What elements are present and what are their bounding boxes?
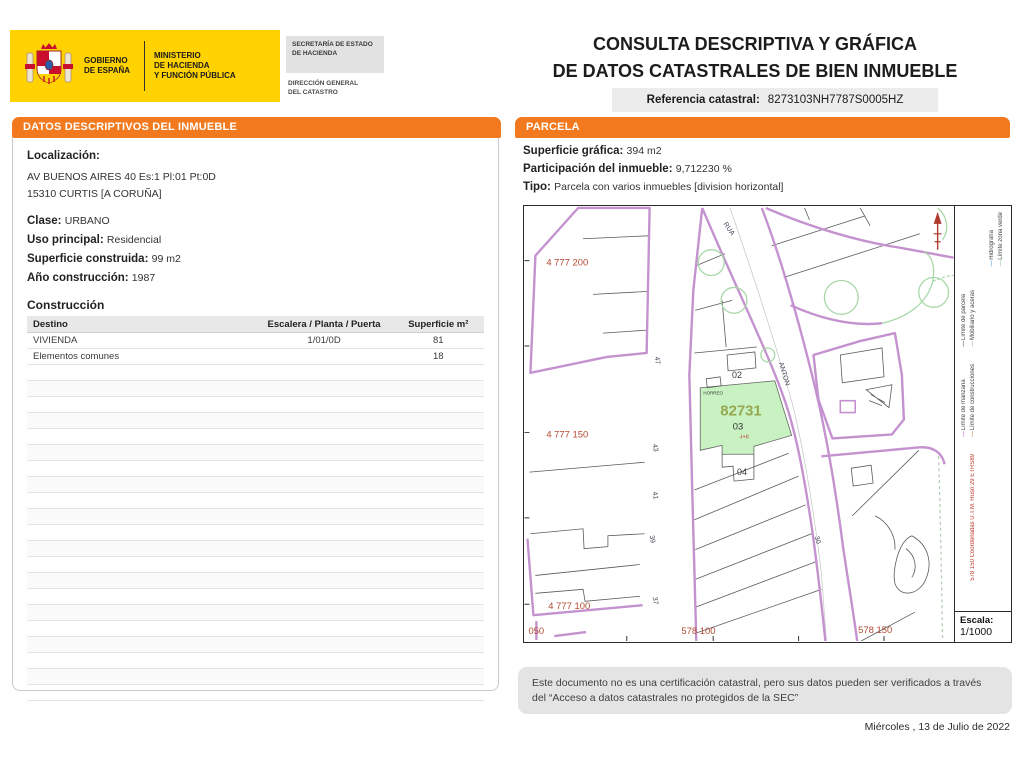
datos-descriptivos-panel: Localización: AV BUENOS AIRES 40 Es:1 Pl…: [12, 138, 499, 691]
construccion-title: Construcción: [27, 298, 484, 312]
field-clase: Clase: URBANO: [27, 212, 484, 231]
escala-label: Escala:: [960, 615, 1011, 626]
street-rua-label: RUA: [721, 221, 735, 237]
table-empty-row: [27, 653, 484, 669]
col-escalera-planta-puerta: Escalera / Planta / Puerta: [256, 316, 393, 333]
table-cell: 81: [393, 333, 484, 349]
table-empty-row: [27, 477, 484, 493]
house-number: 37: [651, 596, 659, 605]
document-title: CONSULTA DESCRIPTIVA Y GRÁFICA DE DATOS …: [520, 31, 990, 85]
table-empty-row: [27, 685, 484, 701]
legend-group-hydro: — Hidrografía — Límite zona verde: [988, 212, 1006, 266]
referencia-value: 8273103NH7787S0005HZ: [768, 94, 904, 106]
parcela-fields: Superficie gráfica: 394 m2 Participación…: [523, 142, 1003, 196]
address-line-1: AV BUENOS AIRES 40 Es:1 Pl:01 Pt:0D: [27, 169, 484, 186]
col-destino: Destino: [27, 316, 256, 333]
referencia-label: Referencia catastral:: [647, 94, 760, 106]
table-empty-row: [27, 525, 484, 541]
field-uso-principal: Uso principal: Residencial: [27, 231, 484, 250]
table-empty-row: [27, 557, 484, 573]
table-empty-row: [27, 381, 484, 397]
table-cell: Elementos comunes: [27, 349, 256, 365]
direccion-general-catastro-label: DIRECCIÓN GENERAL DEL CATASTRO: [288, 80, 358, 97]
coord-x-2: 578 100: [681, 625, 715, 636]
construction-table-body: VIVIENDA1/01/0D81Elementos comunes18: [27, 333, 484, 701]
parcel-floors-label: -I+II: [739, 434, 749, 440]
legend-group-manzana: — Límite de manzana — Límite de construc…: [960, 364, 978, 437]
house-number: 41: [651, 491, 659, 500]
document-date: Miércoles , 13 de Julio de 2022: [700, 721, 1010, 733]
table-empty-row: [27, 445, 484, 461]
title-line-1: CONSULTA DESCRIPTIVA Y GRÁFICA: [520, 31, 990, 58]
field-superficie-construida: Superficie construida: 99 m2: [27, 250, 484, 269]
localizacion-label: Localización:: [27, 150, 484, 162]
table-empty-row: [27, 637, 484, 653]
coord-x-1: 050: [528, 625, 544, 636]
parcel-02-label: 02: [732, 370, 742, 380]
house-number: 39: [648, 535, 656, 544]
col-superficie: Superficie m²: [393, 316, 484, 333]
construccion-table: Destino Escalera / Planta / Puerta Super…: [27, 316, 484, 701]
banner-datos-descriptivos: DATOS DESCRIPTIVOS DEL INMUEBLE: [12, 117, 501, 138]
house-number: 43: [651, 443, 659, 452]
coord-y-3: 4 777 100: [548, 600, 590, 611]
secretaria-estado-label: SECRETARÍA DE ESTADO DE HACIENDA: [286, 36, 384, 73]
table-cell: 18: [393, 349, 484, 365]
address-line-2: 15310 CURTIS [A CORUÑA]: [27, 186, 484, 203]
table-header-row: Destino Escalera / Planta / Puerta Super…: [27, 316, 484, 333]
coord-y-1: 4 777 200: [546, 257, 588, 268]
disclaimer-note: Este documento no es una certificación c…: [518, 667, 1012, 714]
horreo-label: HORREO: [703, 391, 723, 396]
coord-y-2: 4 777 150: [546, 428, 588, 439]
table-empty-row: [27, 589, 484, 605]
escala-value: 1/1000: [960, 626, 1011, 638]
north-arrow-icon: [934, 212, 942, 250]
field-participacion: Participación del inmueble: 9,712230 %: [523, 160, 1003, 178]
table-row: VIVIENDA1/01/0D81: [27, 333, 484, 349]
parcel-03-label: 03: [733, 420, 743, 431]
table-cell: VIVIENDA: [27, 333, 256, 349]
table-cell: 1/01/0D: [256, 333, 393, 349]
legend-group-parcela: — Límite de parcela — Mobiliario y acera…: [960, 290, 978, 347]
table-empty-row: [27, 669, 484, 685]
referencia-catastral: Referencia catastral: 8273103NH7787S0005…: [612, 88, 938, 112]
map-legend: — Hidrografía — Límite zona verde — Lími…: [954, 206, 1011, 642]
cadastral-document: GOBIERNO DE ESPAÑA MINISTERIO DE HACIEND…: [0, 0, 1024, 768]
coord-x-3: 578 150: [858, 624, 892, 635]
table-empty-row: [27, 573, 484, 589]
table-empty-row: [27, 429, 484, 445]
map-ticks: [524, 261, 884, 641]
field-tipo: Tipo: Parcela con varios inmuebles [divi…: [523, 178, 1003, 196]
scale-box: Escala: 1/1000: [954, 611, 1011, 642]
table-empty-row: [27, 605, 484, 621]
table-empty-row: [27, 413, 484, 429]
table-empty-row: [27, 621, 484, 637]
table-empty-row: [27, 509, 484, 525]
parcel-map-drawing[interactable]: 4 777 200 4 777 150 4 777 100 050 578 10…: [524, 206, 954, 641]
cadastral-map[interactable]: 4 777 200 4 777 150 4 777 100 050 578 10…: [523, 205, 1012, 643]
parcel-04-label: 04: [737, 467, 747, 477]
ministerio-label: MINISTERIO DE HACIENDA Y FUNCIÓN PÚBLICA: [154, 51, 264, 81]
table-row: Elementos comunes18: [27, 349, 484, 365]
legend-coords-note: 578 150 Coordenadas U.T.M. Huso 29 ETRS8…: [969, 454, 978, 581]
government-logo: GOBIERNO DE ESPAÑA MINISTERIO DE HACIEND…: [10, 30, 280, 102]
parcel-id-82731: 82731: [720, 404, 761, 420]
logo-divider: [144, 41, 145, 91]
table-empty-row: [27, 397, 484, 413]
house-number: 47: [653, 356, 661, 365]
field-ano-construccion: Año construcción: 1987: [27, 269, 484, 288]
table-cell: [256, 349, 393, 365]
gobierno-espana-label: GOBIERNO DE ESPAÑA: [84, 56, 136, 76]
table-empty-row: [27, 461, 484, 477]
banner-parcela: PARCELA: [515, 117, 1010, 138]
field-superficie-grafica: Superficie gráfica: 394 m2: [523, 142, 1003, 160]
title-line-2: DE DATOS CATASTRALES DE BIEN INMUEBLE: [520, 58, 990, 85]
table-empty-row: [27, 541, 484, 557]
spain-coat-of-arms-icon: [24, 40, 74, 92]
table-empty-row: [27, 365, 484, 381]
table-empty-row: [27, 493, 484, 509]
